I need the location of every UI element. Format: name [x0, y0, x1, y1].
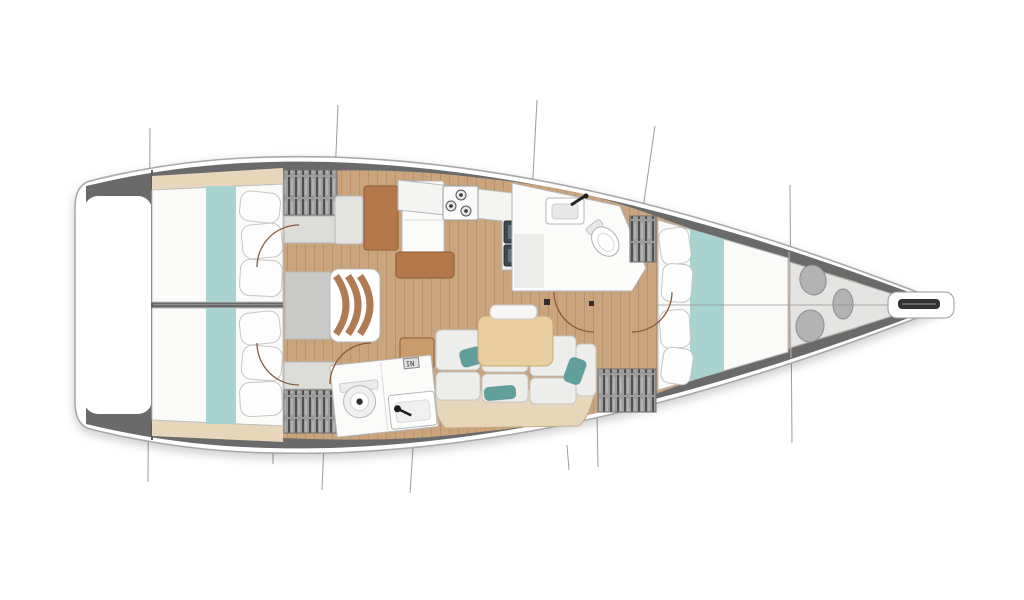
- landing: [285, 272, 330, 339]
- accent-pillow: [483, 385, 516, 402]
- pillow: [660, 346, 695, 386]
- wardrobe-port-aft: [284, 170, 337, 215]
- pillow: [658, 226, 693, 266]
- chart-table: [364, 186, 398, 250]
- wardrobe-shelf: [284, 216, 337, 243]
- pillow: [239, 259, 283, 297]
- pillow: [659, 309, 692, 349]
- nav-seat: [335, 196, 363, 244]
- door-stop-dot: [544, 299, 550, 305]
- burner-center: [459, 193, 463, 197]
- section-line: [567, 445, 569, 470]
- pillow: [239, 381, 283, 417]
- faucet-icon: [584, 194, 589, 199]
- nav-bench: [396, 252, 454, 278]
- cockpit-area: [84, 196, 152, 414]
- shower-pad: [514, 234, 544, 288]
- salon-table: [478, 316, 553, 366]
- table-headrest: [490, 305, 537, 319]
- bed-runner: [206, 186, 236, 302]
- pillow: [661, 263, 694, 303]
- wardrobe-forward-starboard: [598, 369, 656, 412]
- companionway: [285, 269, 380, 342]
- aft-cabin-port: [152, 168, 283, 302]
- yacht-floor-plan: IN: [0, 0, 1024, 600]
- bed-runner: [206, 308, 236, 424]
- door-stop-dot: [589, 301, 594, 306]
- stove: [443, 186, 478, 220]
- section-line: [410, 448, 413, 493]
- pillow: [241, 222, 284, 259]
- bowsprit: [888, 292, 954, 318]
- wardrobe-forward-port: [630, 216, 656, 262]
- pillow: [238, 310, 281, 346]
- wardrobe-starboard-aft: [284, 390, 337, 433]
- burner-center: [449, 204, 453, 208]
- vent-badge-label: IN: [406, 360, 415, 369]
- aft-cabin-starboard: [152, 308, 283, 442]
- settee-cushion: [436, 372, 480, 400]
- burner-center: [464, 209, 468, 213]
- pillow: [239, 190, 282, 224]
- section-line: [597, 412, 598, 467]
- head-aft: IN: [330, 355, 439, 437]
- head-sink-basin: [552, 204, 578, 219]
- sail-bag: [833, 289, 853, 319]
